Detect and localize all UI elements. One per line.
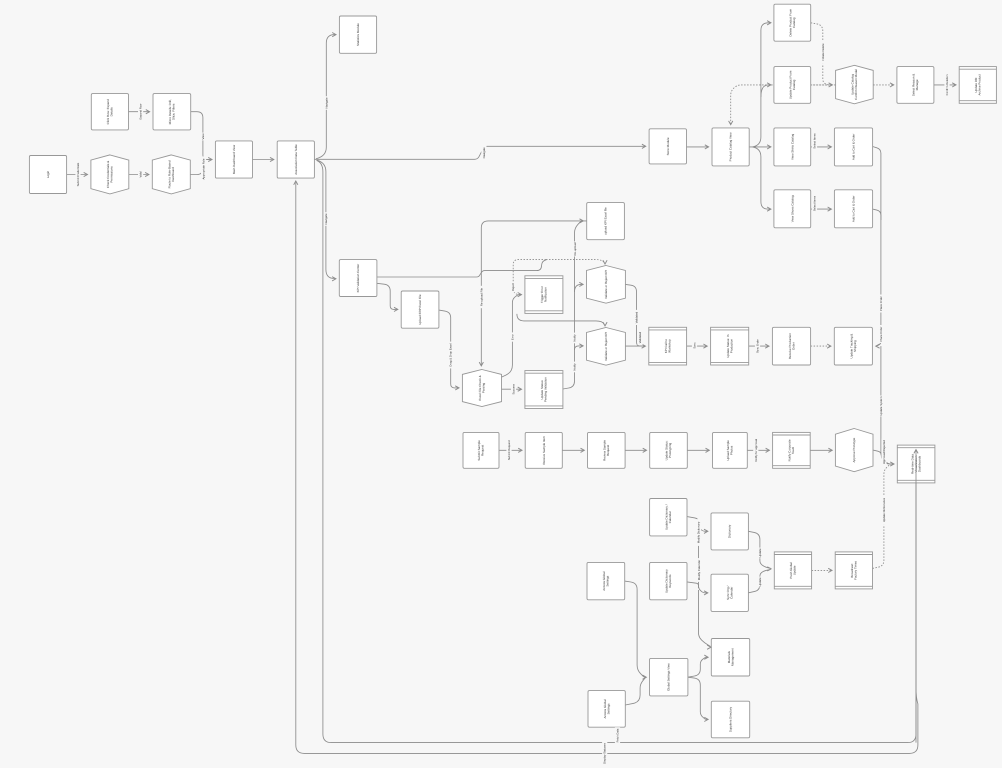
svg-text:Place Order: Place Order	[879, 296, 883, 311]
svg-text:Dashboards: Dashboards	[918, 455, 922, 472]
svg-text:Validate or Reject KPI: Validate or Reject KPI	[604, 270, 608, 299]
svg-text:Keywords: Keywords	[668, 574, 672, 588]
svg-text:Validate or Reject KPI: Validate or Reject KPI	[604, 332, 608, 361]
svg-text:Dictionary: Dictionary	[728, 524, 732, 538]
svg-text:Permissions: Permissions	[110, 166, 114, 183]
svg-text:Submit Credentials: Submit Credentials	[76, 162, 80, 186]
svg-text:Product Catalog View: Product Catalog View	[729, 132, 733, 162]
svg-text:Valid: Valid	[139, 171, 143, 177]
svg-text:Update: Update	[793, 565, 797, 575]
svg-text:KPI Validation Center: KPI Validation Center	[356, 264, 360, 292]
svg-text:Manage: Manage	[915, 79, 919, 90]
svg-text:Upload ERP Excel File: Upload ERP Excel File	[418, 294, 422, 325]
svg-text:Parsing: Parsing	[482, 383, 486, 394]
svg-text:Initiate Delete: Initiate Delete	[821, 43, 825, 61]
svg-text:Archive Product: Archive Product	[978, 74, 982, 95]
svg-text:Fetch Data: Fetch Data	[616, 728, 620, 742]
svg-text:Request: Request	[481, 445, 485, 456]
svg-text:Settings: Settings	[606, 575, 610, 586]
svg-text:Modify Calendar: Modify Calendar	[697, 560, 701, 580]
svg-text:Notification: Notification	[544, 287, 548, 302]
svg-text:Request: Request	[606, 445, 610, 456]
svg-text:Update: Update	[758, 548, 762, 557]
svg-text:Store Module: Store Module	[666, 137, 670, 155]
svg-text:Validated: Validated	[638, 331, 642, 343]
svg-text:upload KPI Excel file: upload KPI Excel file	[604, 207, 608, 235]
svg-text:Calendar: Calendar	[668, 511, 672, 523]
svg-text:Confirm Reason Modal: Confirm Reason Modal	[854, 69, 858, 100]
svg-text:Factory Times: Factory Times	[854, 560, 858, 579]
svg-text:Notify: Notify	[573, 363, 577, 371]
svg-text:Notify: Notify	[573, 334, 577, 342]
svg-text:Confirm Deletion: Confirm Deletion	[945, 74, 949, 95]
svg-text:Prototyping: Prototyping	[668, 442, 672, 458]
svg-text:Update System: Update System	[879, 396, 883, 416]
svg-text:Reject: Reject	[511, 283, 515, 291]
svg-text:Order: Order	[791, 342, 795, 350]
svg-text:Expand Row: Expand Row	[139, 103, 143, 120]
svg-text:Re-upload: Re-upload	[573, 242, 577, 255]
svg-text:Approved/Rejected: Approved/Rejected	[882, 440, 886, 464]
svg-text:Sync: Sync	[693, 342, 697, 349]
svg-text:View Shirts Catalog: View Shirts Catalog	[790, 134, 794, 160]
svg-text:Statistics Module: Statistics Module	[356, 23, 360, 46]
svg-text:Add to Cart & Order: Add to Cart & Order	[852, 196, 856, 223]
svg-text:Main Dashboard View: Main Dashboard View	[232, 144, 236, 174]
svg-text:Select Items: Select Items	[813, 133, 817, 149]
svg-text:Navigate: Navigate	[482, 147, 486, 158]
svg-text:Sync Order: Sync Order	[756, 339, 760, 353]
svg-text:Calendar: Calendar	[729, 587, 733, 599]
svg-text:Display Statuses: Display Statuses	[603, 742, 607, 763]
svg-text:Shipping: Shipping	[853, 340, 857, 352]
svg-text:Catalog: Catalog	[792, 17, 796, 28]
svg-text:Appropriate Role: Appropriate Role	[202, 158, 206, 179]
svg-text:Notify for approval: Notify for approval	[754, 439, 758, 462]
svg-text:Navigate: Navigate	[324, 97, 328, 108]
svg-text:Navigate: Navigate	[324, 213, 328, 224]
svg-text:Update: Update	[758, 577, 762, 586]
svg-text:Dashboard: Dashboard	[171, 167, 175, 182]
svg-text:Update Dictionaries: Update Dictionaries	[882, 497, 886, 522]
svg-text:Place Order: Place Order	[879, 326, 883, 341]
svg-text:Management: Management	[730, 648, 734, 666]
svg-text:Pending Validation: Pending Validation	[544, 377, 548, 402]
svg-text:Error: Error	[510, 334, 514, 340]
svg-text:View Shoes Catalog: View Shoes Catalog	[790, 195, 794, 222]
svg-text:Slice, Filters: Slice, Filters	[172, 103, 176, 120]
svg-text:Team: Team	[791, 446, 795, 454]
svg-text:View: View	[201, 133, 205, 140]
svg-text:Select Items: Select Items	[813, 195, 817, 211]
svg-text:Receive Sample Item: Receive Sample Item	[542, 436, 546, 465]
svg-text:Photos: Photos	[730, 445, 734, 455]
svg-text:Catalog: Catalog	[792, 79, 796, 90]
svg-text:Modify Dictionary: Modify Dictionary	[697, 521, 701, 543]
svg-text:Submit Request: Submit Request	[507, 440, 511, 460]
svg-text:Validated: Validated	[635, 311, 639, 323]
svg-text:Global Settings View: Global Settings View	[667, 662, 671, 690]
svg-text:Production: Production	[730, 339, 734, 354]
svg-text:Login: Login	[46, 171, 50, 179]
svg-text:Details: Details	[110, 107, 114, 117]
svg-text:Re-upload File: Re-upload File	[479, 287, 483, 306]
svg-text:Add to Cart & Order: Add to Cart & Order	[852, 134, 856, 161]
svg-text:Approve Prototype: Approve Prototype	[852, 437, 856, 462]
svg-text:Success: Success	[512, 383, 516, 394]
svg-text:Drag & Drop Excel: Drag & Drop Excel	[449, 343, 453, 367]
svg-text:Suppliers Directory: Suppliers Directory	[729, 706, 733, 732]
svg-text:Settings: Settings	[606, 703, 610, 714]
svg-text:Workshop: Workshop	[668, 339, 672, 353]
svg-text:Association Data Table: Association Data Table	[294, 144, 298, 175]
